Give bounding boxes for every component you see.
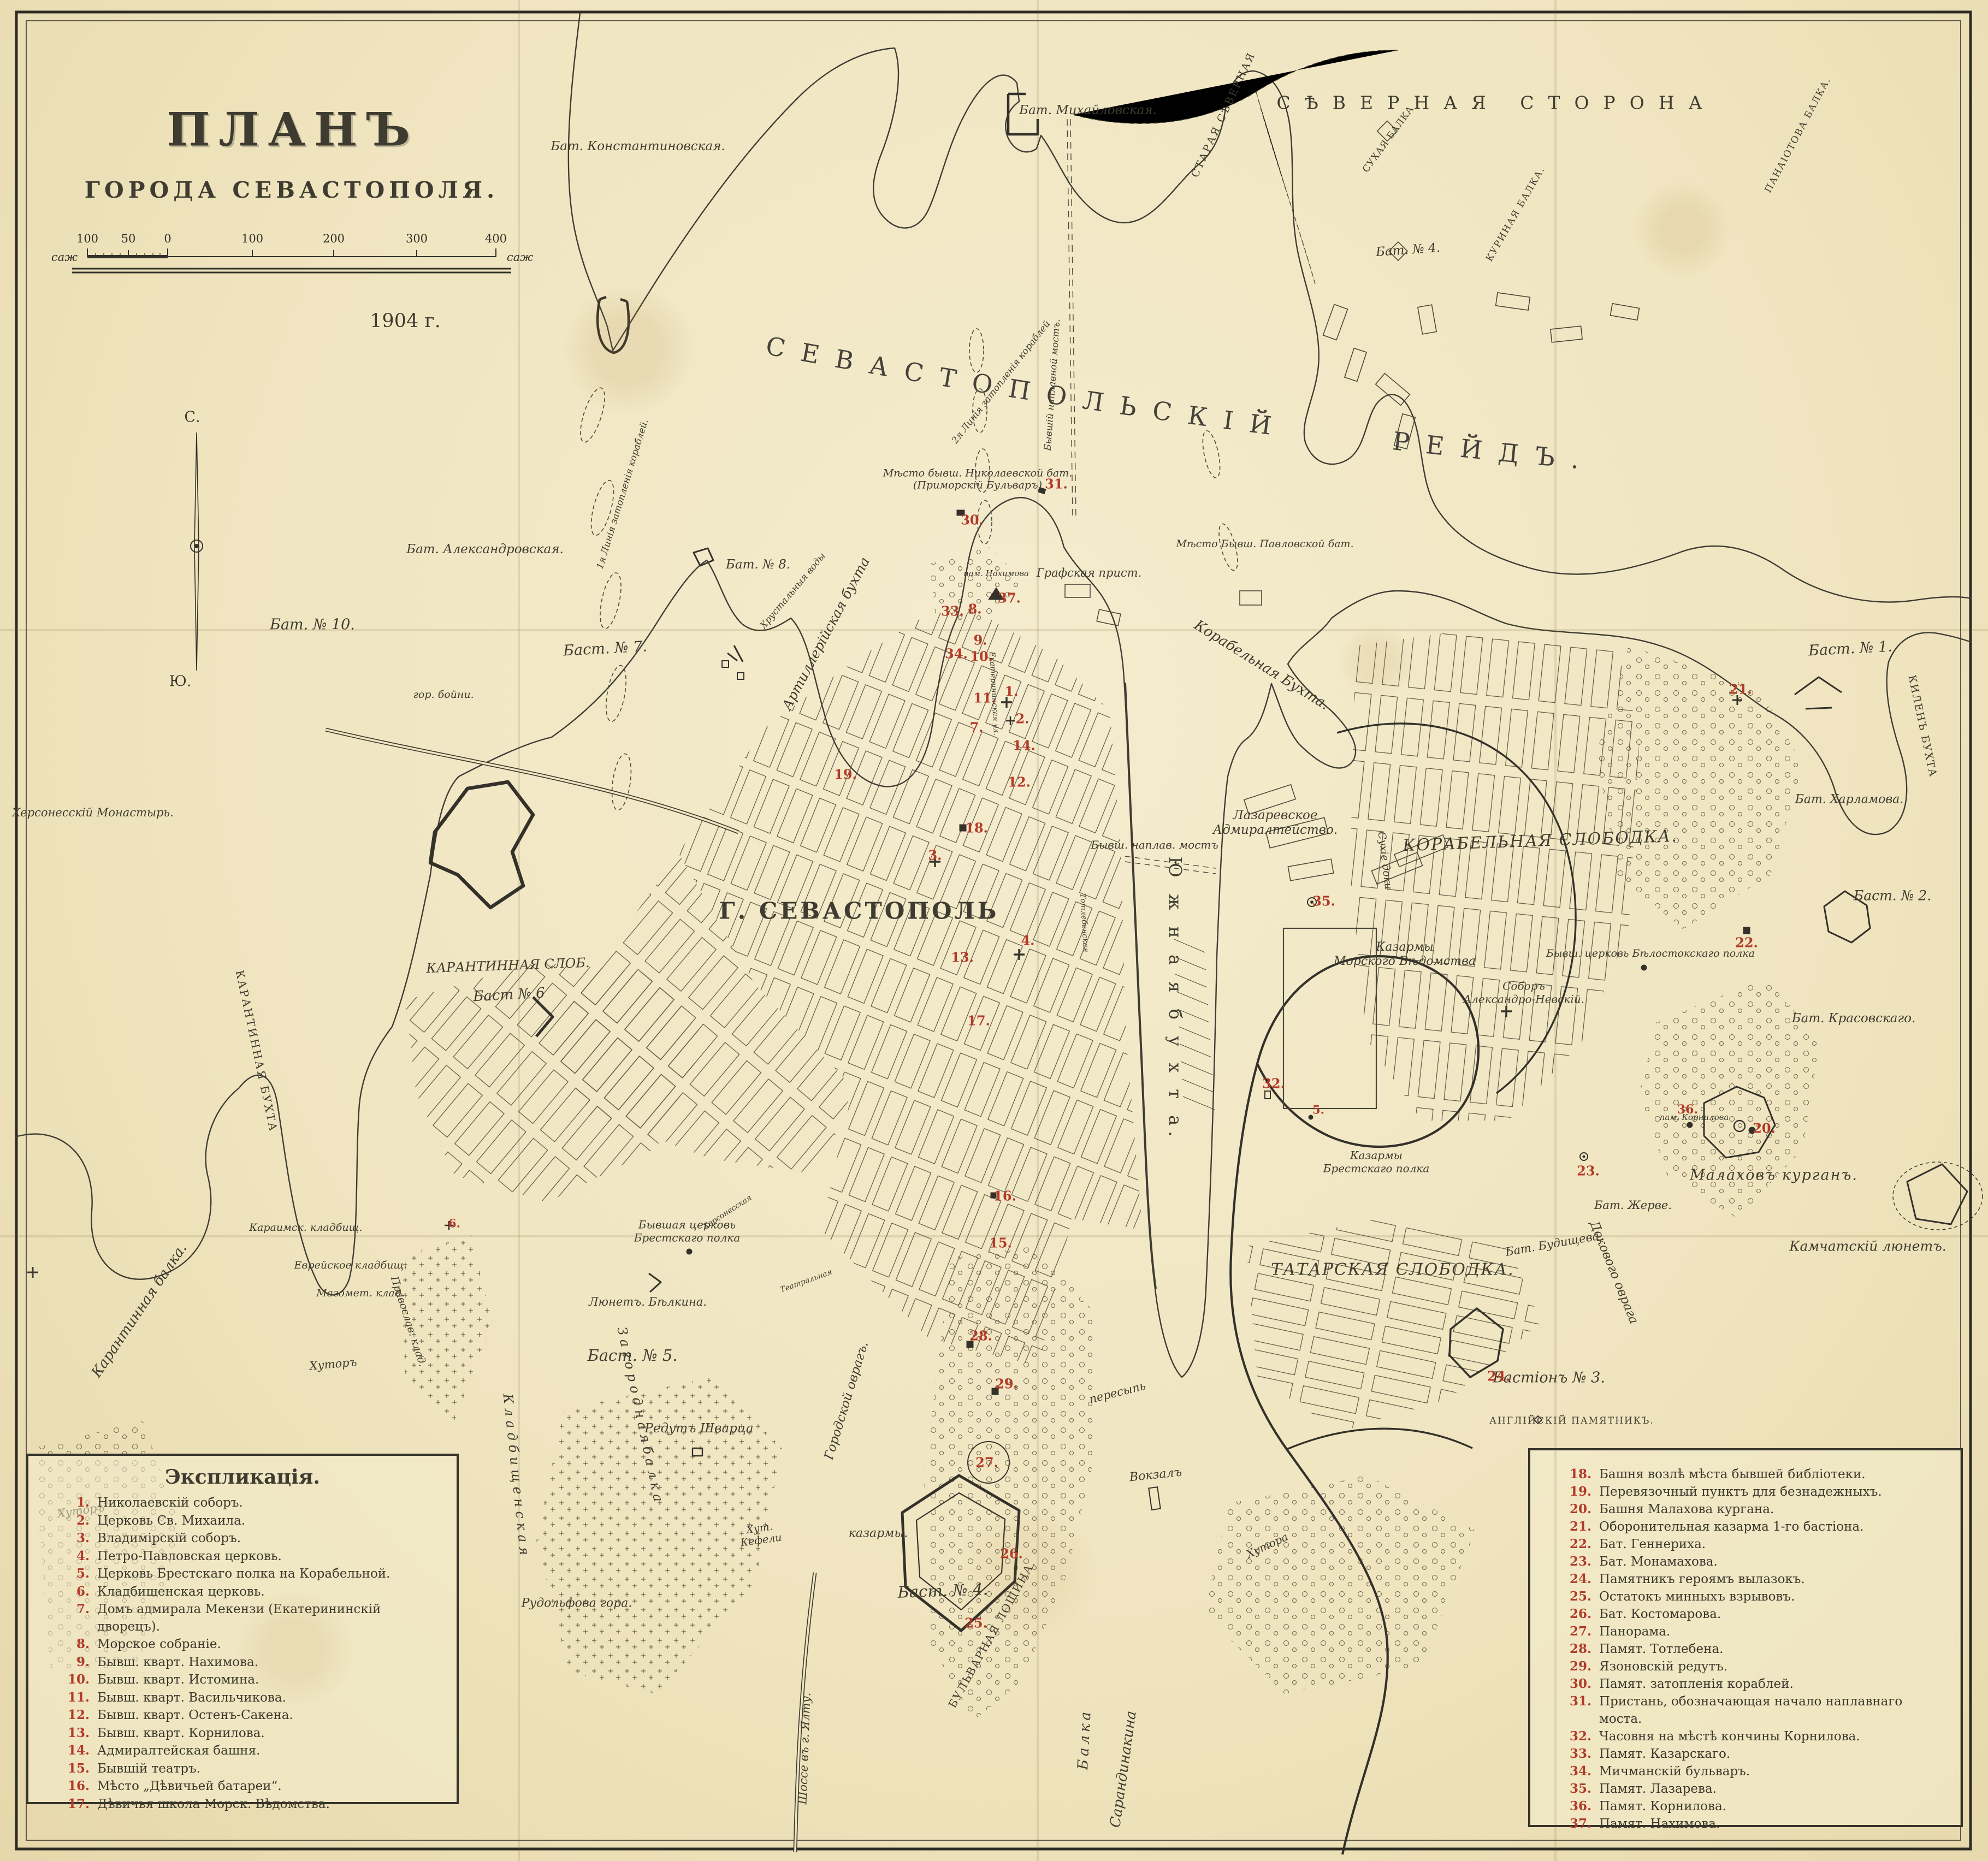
legend-list-right: 18.Башня возлѣ мѣста бывшей библіотеки. …: [1530, 1454, 1961, 1833]
legend-item: 24.Памятникъ героямъ вылазокъ.: [1563, 1570, 1946, 1588]
legend-item-number: 17.: [61, 1795, 90, 1813]
label-pam-nakhimova: пам. Нахимова: [963, 568, 1029, 578]
label-kamchatsky-lyunet: Камчатскій люнетъ.: [1789, 1238, 1946, 1254]
legend-item-number: 28.: [1563, 1640, 1591, 1658]
legend-item-number: 30.: [1563, 1675, 1591, 1693]
scale-tick: 0: [164, 232, 171, 245]
legend-item-text: Панорама.: [1599, 1623, 1670, 1640]
legend-item-number: 5.: [61, 1565, 90, 1583]
legend-item-text: Часовня на мѣстѣ кончины Корнилова.: [1599, 1728, 1860, 1745]
legend-item-text: Остатокъ минныхъ взрывовъ.: [1599, 1588, 1795, 1605]
scale-unit-right: саж: [507, 251, 533, 264]
legend-item: 26.Бат. Костомарова.: [1563, 1605, 1946, 1623]
label-yuzhnaya-bukhta: Ю ж н а я б у х т а.: [1165, 857, 1186, 1142]
legend-item-number: 23.: [1563, 1553, 1591, 1570]
legend-item-text: Бат. Костомарова.: [1599, 1605, 1721, 1623]
label-mesto-pavlovskoy: Мѣсто Бывш. Павловской бат.: [1176, 538, 1353, 550]
compass-north-label: С.: [184, 409, 200, 426]
scale-tick: 200: [323, 232, 345, 245]
marker-33: 33.: [941, 603, 964, 619]
legend-item: 31.Пристань, обозначающая начало наплавн…: [1563, 1693, 1946, 1728]
marker-19: 19.: [834, 767, 857, 783]
legend-item-text: Башня возлѣ мѣста бывшей библіотеки.: [1599, 1466, 1866, 1483]
label-naplav-most-s: Бывш. наплав. мостъ: [1091, 838, 1218, 851]
legend-item-number: 6.: [61, 1583, 90, 1601]
label-bat-konstantinovskaya: Бат. Константиновская.: [551, 139, 725, 153]
legend-item-number: 32.: [1563, 1728, 1591, 1745]
legend-item-number: 10.: [61, 1671, 90, 1688]
legend-item-text: Бывш. кварт. Нахимова.: [97, 1654, 258, 1672]
map-title: ПЛАНЪ: [167, 103, 419, 157]
marker-24: 24.: [1487, 1368, 1510, 1384]
legend-item-text: Бывш. кварт. Васильчикова.: [97, 1690, 286, 1707]
legend-item-text: Бат. Монамахова.: [1599, 1553, 1718, 1570]
legend-item-number: 36.: [1563, 1798, 1591, 1815]
legend-item-text: Церковь Св. Михаила.: [97, 1513, 245, 1530]
legend-item: 11.Бывш. кварт. Васильчикова.: [61, 1689, 442, 1707]
legend-item: 10.Бывш. кварт. Истомина.: [61, 1671, 442, 1689]
label-kazarmy-morskogo: Казармы Морского Вѣдомства: [1334, 940, 1476, 969]
label-anglysky-pamyatnik: АНГЛІЙСКІЙ ПАМЯТНИКЪ.: [1489, 1415, 1654, 1426]
label-bast-n5: Баст. № 5.: [587, 1346, 677, 1365]
marker-14: 14.: [1013, 738, 1036, 754]
marker-4: 4.: [1021, 933, 1034, 949]
label-redut-shvartsa: Редутъ Шварца: [644, 1421, 753, 1436]
marker-13: 13.: [951, 950, 974, 965]
map-page: 100 50 0 100 200 300 400 саж саж СЕВАСТО…: [0, 0, 1988, 1861]
label-khersonessky-monastyr: Херсонесскій Монастырь.: [12, 806, 173, 819]
legend-item-text: Николаевскій соборъ.: [97, 1495, 243, 1512]
marker-25: 25.: [965, 1615, 987, 1631]
legend-item: 8.Морское собраніе.: [61, 1635, 442, 1653]
legend-item-number: 18.: [1563, 1466, 1591, 1483]
legend-item: 32.Часовня на мѣстѣ кончины Корнилова.: [1563, 1728, 1946, 1745]
pontoon-bridges: [1067, 50, 1398, 874]
legend-item-text: Бат. Геннериха.: [1599, 1536, 1706, 1553]
legend-item: 23.Бат. Монамахова.: [1563, 1553, 1946, 1570]
legend-item-number: 27.: [1563, 1623, 1591, 1640]
label-gor-boyni: гор. бойни.: [413, 689, 474, 701]
legend-item-text: Перевязочный пунктъ для безнадежныхъ.: [1599, 1483, 1882, 1501]
label-g-sevastopol: Г. СЕВАСТОПОЛЬ: [719, 898, 999, 924]
legend-item-number: 2.: [61, 1512, 90, 1530]
marker-18: 18.: [965, 820, 988, 836]
label-kazarmy-south: казармы.: [849, 1527, 908, 1540]
legend-item: 19.Перевязочный пунктъ для безнадежныхъ.: [1563, 1483, 1946, 1501]
compass-south-label: Ю.: [169, 673, 192, 690]
marker-26: 26.: [1000, 1546, 1023, 1562]
legend-item-number: 4.: [61, 1548, 90, 1565]
legend-item-text: Памятникъ героямъ вылазокъ.: [1599, 1570, 1805, 1588]
marker-36: 36.: [1677, 1103, 1698, 1117]
marker-17: 17.: [967, 1013, 990, 1029]
legend-item-number: 12.: [61, 1706, 90, 1724]
legend-box-right: 18.Башня возлѣ мѣста бывшей библіотеки. …: [1528, 1448, 1963, 1827]
scale-unit-left: саж: [51, 251, 78, 264]
legend-item: 16.Мѣсто „Дѣвичьей батареи“.: [61, 1777, 442, 1795]
marker-2: 2.: [1015, 711, 1029, 727]
label-lyunet-belkina: Люнетъ. Бѣлкина.: [589, 1295, 707, 1308]
label-bat-zherve: Бат. Жерве.: [1594, 1199, 1672, 1212]
legend-title: Экспликація.: [28, 1466, 457, 1489]
marker-23: 23.: [1577, 1163, 1600, 1179]
legend-item-text: Адмиралтейская башня.: [97, 1743, 260, 1760]
marker-12: 12.: [1008, 774, 1031, 790]
legend-item: 2.Церковь Св. Михаила.: [61, 1512, 442, 1530]
legend-item-text: Башня Малахова кургана.: [1599, 1501, 1774, 1518]
legend-item: 18.Башня возлѣ мѣста бывшей библіотеки.: [1563, 1466, 1946, 1483]
legend-item: 27.Панорама.: [1563, 1623, 1946, 1640]
legend-item-text: Оборонительная казарма 1-го бастіона.: [1599, 1518, 1863, 1536]
legend-item-number: 14.: [61, 1742, 90, 1759]
legend-item-text: Памят. Нахимова.: [1599, 1815, 1720, 1833]
scale-tick: 50: [121, 232, 136, 245]
scale-tick: 400: [485, 232, 507, 245]
map-subtitle: ГОРОДА СЕВАСТОПОЛЯ.: [85, 177, 499, 203]
legend-item-text: Кладбищенская церковь.: [97, 1584, 265, 1601]
legend-item: 35.Памят. Лазарева.: [1563, 1780, 1946, 1798]
label-bat-mikhailovskaya: Бат. Михайловская.: [1019, 103, 1157, 117]
legend-item-text: Морское собраніе.: [97, 1636, 221, 1653]
label-severnaya-storona: СѢВЕРНАЯ СТОРОНА: [1276, 92, 1716, 114]
legend-item-number: 3.: [61, 1530, 90, 1547]
label-tserkov-brest: Бывшая церковь Брестскаго полка: [634, 1218, 741, 1244]
marker-6: 6.: [448, 1217, 460, 1230]
compass: [191, 432, 203, 671]
marker-29: 29.: [995, 1376, 1018, 1392]
legend-item-text: Петро-Павловская церковь.: [97, 1548, 282, 1566]
scale-tick: 100: [241, 232, 263, 245]
legend-item-number: 20.: [1563, 1501, 1591, 1518]
legend-item-number: 24.: [1563, 1570, 1591, 1588]
marker-35: 35.: [1312, 893, 1335, 909]
marker-8: 8.: [968, 601, 981, 617]
legend-item: 6.Кладбищенская церковь.: [61, 1583, 442, 1601]
legend-item-text: Памят. Корнилова.: [1599, 1798, 1726, 1815]
label-bat-kharlamova: Бат. Харламова.: [1795, 793, 1904, 807]
legend-item: 17.Дѣвичья школа Морск. Вѣдомства.: [61, 1795, 442, 1813]
legend-item-number: 26.: [1563, 1605, 1591, 1623]
sea-label-reyd: СЕВАСТОПОЛЬСКІЙ РЕЙДЪ.: [764, 331, 1597, 476]
marker-27: 27.: [975, 1455, 998, 1471]
marker-20: 20.: [1753, 1121, 1776, 1136]
scale-bar: 100 50 0 100 200 300 400 саж саж: [51, 232, 533, 272]
scale-tick: 300: [406, 232, 428, 245]
legend-item-text: Владимірскій соборъ.: [97, 1530, 241, 1548]
label-kazarmy-brest: Казармы Брестскаго полка: [1323, 1149, 1430, 1175]
sea-title: СЕВАСТОПОЛЬСКІЙ РЕЙДЪ.: [764, 331, 1597, 476]
legend-item-number: 11.: [61, 1689, 90, 1706]
legend-item-text: Мичманскій бульваръ.: [1599, 1763, 1750, 1780]
legend-item: 3.Владимірскій соборъ.: [61, 1530, 442, 1548]
legend-item: 4.Петро-Павловская церковь.: [61, 1548, 442, 1566]
legend-list-left: 1.Николаевскій соборъ. 2.Церковь Св. Мих…: [28, 1494, 457, 1813]
legend-item-text: Мѣсто „Дѣвичьей батареи“.: [97, 1778, 282, 1795]
legend-item-number: 34.: [1563, 1763, 1591, 1780]
legend-item-number: 8.: [61, 1635, 90, 1653]
marker-22: 22.: [1735, 935, 1758, 951]
map-year: 1904 г.: [370, 310, 441, 332]
marker-30: 30.: [961, 512, 984, 528]
label-evreyskoe-kladb: Еврейское кладбищ.: [294, 1259, 407, 1271]
legend-item-number: 22.: [1563, 1536, 1591, 1553]
marker-16: 16.: [993, 1188, 1016, 1204]
legend-item-number: 31.: [1563, 1693, 1591, 1710]
legend-item-text: Язоновскій редутъ.: [1599, 1658, 1727, 1675]
label-bat-n8: Бат. № 8.: [726, 558, 790, 572]
label-sobor-aleks-nevsky: Соборъ Александро-Невскій.: [1463, 980, 1584, 1005]
legend-item-text: Дѣвичья школа Морск. Вѣдомства.: [97, 1796, 330, 1813]
legend-item-number: 35.: [1563, 1780, 1591, 1798]
legend-item-number: 7.: [61, 1601, 90, 1618]
legend-item: 33.Памят. Казарскаго.: [1563, 1745, 1946, 1763]
label-bat-krasovskago: Бат. Красовскаго.: [1792, 1011, 1916, 1026]
legend-item-text: Пристань, обозначающая начало наплавнаго…: [1599, 1693, 1946, 1728]
legend-item-text: Памят. Лазарева.: [1599, 1780, 1717, 1798]
legend-item: 28.Памят. Тотлебена.: [1563, 1640, 1946, 1658]
marker-7: 7.: [969, 720, 983, 736]
marker-37: 37.: [998, 590, 1021, 606]
marker-31: 31.: [1045, 476, 1068, 492]
scale-tick: 100: [76, 232, 98, 245]
legend-item-number: 1.: [61, 1494, 90, 1512]
legend-item-number: 19.: [1563, 1483, 1591, 1501]
label-tserkov-belostok: Бывш. церковь Бѣлостокскаго полка: [1546, 947, 1755, 959]
marker-5: 5.: [1312, 1103, 1324, 1117]
legend-item-text: Памят. затопленія кораблей.: [1599, 1675, 1794, 1693]
marker-9: 9.: [973, 632, 987, 648]
marker-1: 1.: [1004, 684, 1018, 700]
legend-item-number: 13.: [61, 1724, 90, 1742]
legend-item-text: Бывш. кварт. Корнилова.: [97, 1725, 265, 1743]
label-tatarskaya-slobodka: ТАТАРСКАЯ СЛОБОДКА.: [1271, 1260, 1514, 1279]
label-bat-n10: Бат. № 10.: [270, 617, 355, 633]
marker-11: 11.: [973, 690, 996, 706]
legend-item: 25.Остатокъ минныхъ взрывовъ.: [1563, 1588, 1946, 1605]
legend-item-text: Церковь Брестскаго полка на Корабельной.: [97, 1566, 390, 1583]
legend-item: 37.Памят. Нахимова.: [1563, 1815, 1946, 1833]
legend-item-number: 16.: [61, 1777, 90, 1795]
legend-box-left: Экспликація. 1.Николаевскій соборъ. 2.Це…: [26, 1454, 459, 1804]
legend-item-number: 29.: [1563, 1658, 1591, 1675]
marker-32: 32.: [1262, 1076, 1285, 1092]
label-lazarevskoe: Лазаревское Адмиралтейство.: [1213, 808, 1338, 838]
legend-item-text: Бывш. кварт. Истомина.: [97, 1672, 259, 1689]
marker-15: 15.: [989, 1235, 1012, 1251]
legend-item: 22.Бат. Геннериха.: [1563, 1536, 1946, 1553]
marker-10: 10.: [970, 649, 993, 665]
legend-item-number: 37.: [1563, 1815, 1591, 1833]
legend-item-text: Домъ адмирала Мекензи (Екатерининскій дв…: [97, 1601, 442, 1635]
legend-item: 36.Памят. Корнилова.: [1563, 1798, 1946, 1815]
marker-3: 3.: [928, 847, 942, 863]
legend-item: 34.Мичманскій бульваръ.: [1563, 1763, 1946, 1780]
legend-item-number: 21.: [1563, 1518, 1591, 1536]
legend-item: 13.Бывш. кварт. Корнилова.: [61, 1724, 442, 1743]
label-malakhov-kurgan: Малаховъ курганъ.: [1690, 1167, 1858, 1184]
legend-item: 15.Бывшій театръ.: [61, 1760, 442, 1778]
legend-item-number: 15.: [61, 1760, 90, 1777]
label-bast-n4: Баст. № 4.: [897, 1580, 988, 1602]
label-bast-n2: Баст. № 2.: [1854, 888, 1931, 904]
legend-item: 9.Бывш. кварт. Нахимова.: [61, 1653, 442, 1672]
legend-item: 21.Оборонительная казарма 1-го бастіона.: [1563, 1518, 1946, 1536]
legend-item-text: Памят. Тотлебена.: [1599, 1640, 1723, 1658]
legend-item-text: Бывш. кварт. Остенъ-Сакена.: [97, 1707, 293, 1724]
legend-item: 7.Домъ адмирала Мекензи (Екатерининскій …: [61, 1601, 442, 1635]
legend-item-number: 25.: [1563, 1588, 1591, 1605]
legend-item-number: 33.: [1563, 1745, 1591, 1763]
legend-item-text: Бывшій театръ.: [97, 1761, 200, 1778]
label-balka-sarandinakina-1: Балка: [1075, 1708, 1094, 1770]
legend-item-text: Памят. Казарскаго.: [1599, 1745, 1730, 1763]
marker-34: 34.: [945, 646, 968, 662]
marker-21: 21.: [1729, 681, 1752, 697]
legend-item: 12.Бывш. кварт. Остенъ-Сакена.: [61, 1706, 442, 1724]
label-mesto-nikolaevskoy: Мѣсто бывш. Николаевской бат. (Приморскі…: [883, 467, 1073, 492]
label-bat-aleksandrovskaya: Бат. Александровская.: [406, 542, 564, 556]
label-karaimsk-kladb: Караимск. кладбищ.: [249, 1222, 362, 1234]
label-grafskaya-prist: Графская прист.: [1037, 566, 1142, 579]
legend-item-number: 9.: [61, 1653, 90, 1671]
legend-item: 29.Язоновскій редутъ.: [1563, 1658, 1946, 1675]
marker-28: 28.: [969, 1328, 992, 1344]
legend-item: 1.Николаевскій соборъ.: [61, 1494, 442, 1512]
legend-item: 30.Памят. затопленія кораблей.: [1563, 1675, 1946, 1693]
label-rudolfova-gora: Рудольфова гора.: [522, 1597, 632, 1610]
legend-item: 14.Адмиралтейская башня.: [61, 1742, 442, 1760]
legend-item: 20.Башня Малахова кургана.: [1563, 1501, 1946, 1518]
legend-item: 5.Церковь Брестскаго полка на Корабельно…: [61, 1565, 442, 1583]
